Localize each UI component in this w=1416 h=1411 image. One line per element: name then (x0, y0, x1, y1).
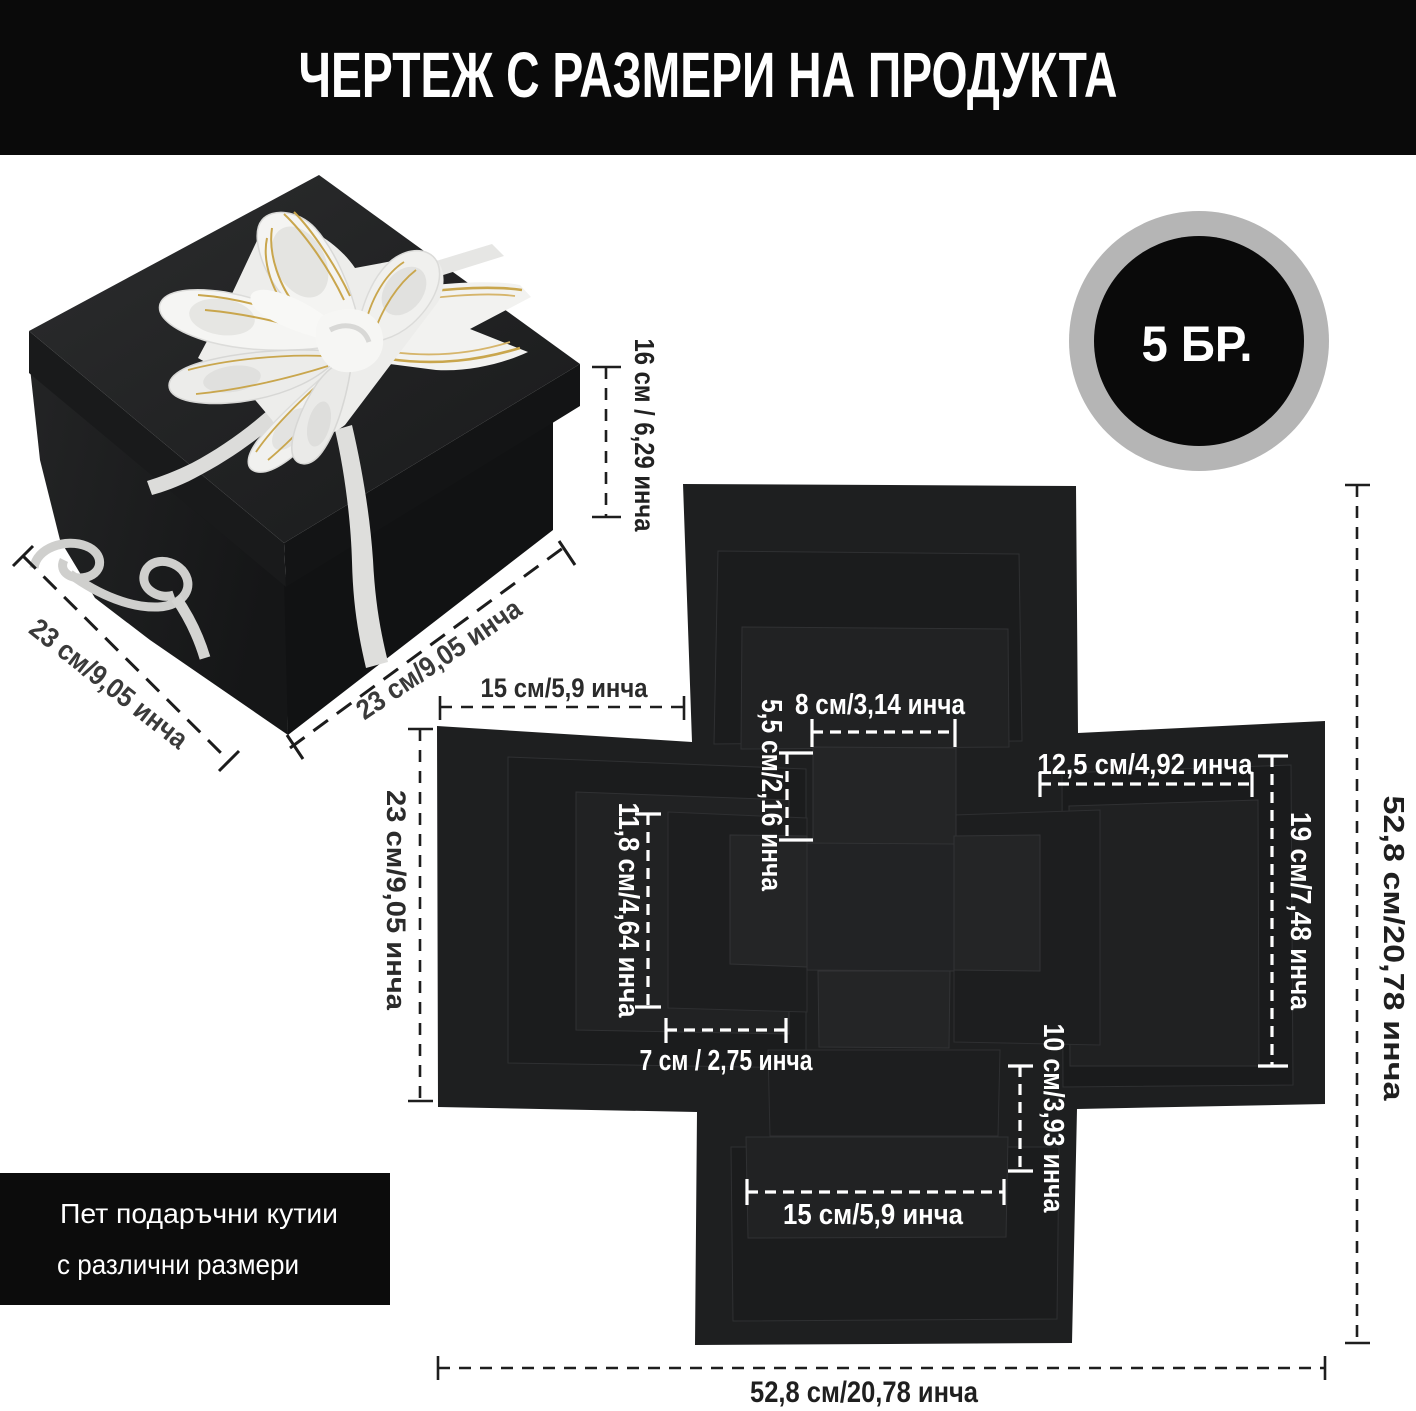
svg-text:52,8 см/20,78 инча: 52,8 см/20,78 инча (750, 1376, 978, 1409)
svg-text:11,8 см/4,64 инча: 11,8 см/4,64 инча (612, 803, 644, 1019)
svg-text:10 см/3,93 инча: 10 см/3,93 инча (1037, 1024, 1069, 1214)
svg-text:16 см / 6,29 инча: 16 см / 6,29 инча (629, 339, 660, 532)
svg-text:52,8 см/20,78 инча: 52,8 см/20,78 инча (1377, 796, 1409, 1102)
svg-text:8 см/3,14 инча: 8 см/3,14 инча (795, 689, 966, 721)
svg-text:7 см / 2,75 инча: 7 см / 2,75 инча (640, 1045, 814, 1077)
svg-text:с различни размери: с различни размери (57, 1249, 299, 1280)
svg-text:15 см/5,9 инча: 15 см/5,9 инча (481, 673, 649, 703)
svg-text:Пет подаръчни кутии: Пет подаръчни кутии (60, 1198, 338, 1229)
svg-text:15 см/5,9 инча: 15 см/5,9 инча (783, 1199, 964, 1231)
svg-text:23 см/9,05 инча: 23 см/9,05 инча (381, 790, 411, 1011)
svg-text:19 см/7,48 инча: 19 см/7,48 инча (1284, 812, 1316, 1011)
svg-text:12,5 см/4,92 инча: 12,5 см/4,92 инча (1038, 749, 1254, 781)
svg-text:5 БР.: 5 БР. (1142, 316, 1253, 372)
svg-text:ЧЕРТЕЖ С РАЗМЕРИ НА ПРОДУКТА: ЧЕРТЕЖ С РАЗМЕРИ НА ПРОДУКТА (299, 39, 1118, 111)
svg-text:5,5 см/2,16 инча: 5,5 см/2,16 инча (755, 699, 787, 892)
